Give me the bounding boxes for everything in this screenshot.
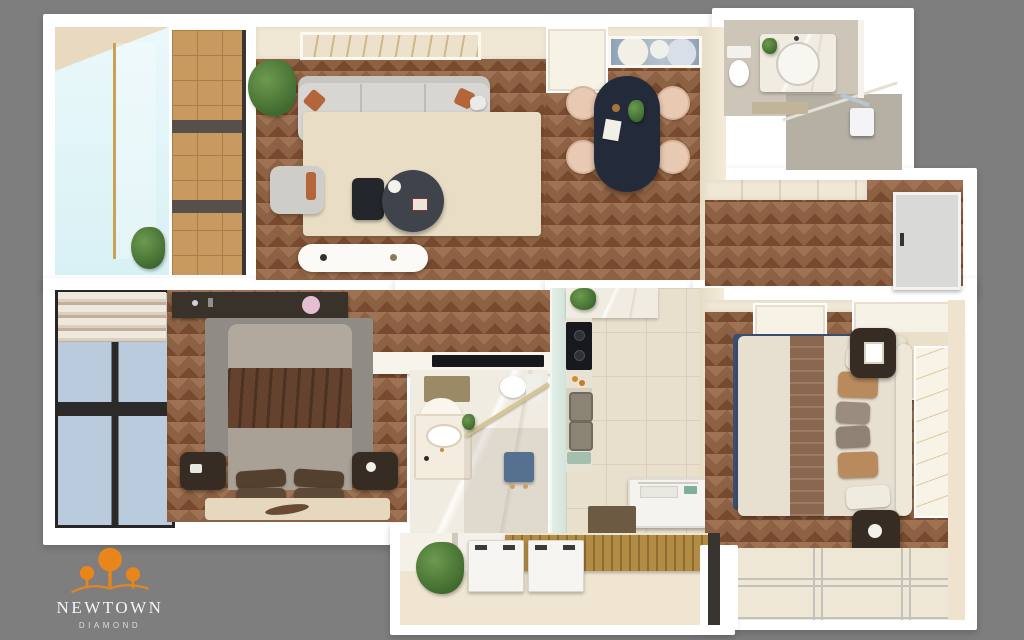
water-heater — [850, 108, 874, 136]
toilet-tank — [727, 46, 751, 58]
washer-control — [563, 545, 575, 550]
television — [432, 355, 544, 367]
stool-leg — [510, 484, 515, 489]
bed-pillow-gray — [835, 401, 870, 425]
window-bench — [298, 244, 428, 272]
cutting-board — [567, 452, 591, 464]
pink-flower-pom — [302, 296, 320, 314]
dining-table-bowl — [612, 104, 620, 112]
bed-headboard — [896, 344, 912, 516]
appliance-lid-line — [638, 482, 698, 484]
kitchen-counter-top — [566, 288, 658, 318]
soap-dish — [424, 456, 429, 461]
washer-control — [503, 545, 515, 550]
stool-leg — [523, 484, 528, 489]
appliance-tray — [640, 486, 678, 498]
kitchen-sink-counter — [566, 388, 592, 450]
kitchen-plant — [570, 288, 596, 310]
photo-frame — [864, 342, 884, 364]
balcony-plant — [131, 227, 165, 269]
bed-blanket-brown — [228, 368, 352, 432]
fruit-bowl — [572, 376, 578, 382]
vanity-sink — [776, 42, 820, 86]
vase — [388, 180, 401, 193]
brand-logo: NEWTOWN DIAMOND — [40, 546, 180, 638]
sliding-door-track — [172, 200, 246, 213]
bath-mat — [752, 102, 808, 114]
sink-basin — [569, 392, 593, 422]
stove-cooktop — [566, 322, 592, 370]
bed-pillow-tan — [838, 451, 879, 478]
nightstand-flowers — [868, 524, 882, 538]
entry-door — [893, 192, 961, 290]
dining-table-plant — [628, 100, 644, 122]
balcony-sky-view — [55, 27, 169, 275]
dining-table — [594, 76, 660, 192]
perfume-bottle — [192, 300, 198, 306]
sliding-door-track — [172, 120, 246, 133]
washer-control — [475, 545, 487, 550]
stove-burner — [574, 330, 585, 341]
bathroom1-vanity — [760, 34, 836, 92]
bed-pillow — [293, 468, 344, 489]
bench-decor — [320, 254, 327, 261]
appliance-chip — [684, 486, 697, 494]
washer-control — [535, 545, 547, 550]
floorplan-render: NEWTOWN DIAMOND — [0, 0, 1024, 640]
brand-name: NEWTOWN — [57, 598, 164, 618]
nightstand — [180, 452, 226, 490]
bedroom1-bed — [228, 324, 352, 516]
dining-cabinet — [546, 27, 608, 93]
dining-table-papers — [602, 119, 621, 141]
armchair — [270, 166, 324, 214]
dining-wall-art — [608, 36, 702, 68]
side-table — [352, 178, 384, 220]
sink-faucet — [794, 36, 799, 41]
washing-machine — [468, 540, 524, 592]
bed-runner — [790, 336, 824, 516]
dining-chair — [656, 86, 690, 120]
vanity-plant — [762, 38, 777, 54]
bathroom2-plant — [462, 414, 475, 430]
throw-pillow-terracotta — [303, 89, 327, 113]
foot-of-bed-mat — [205, 498, 390, 520]
bed-pillow — [235, 468, 286, 489]
living-room-plant — [248, 60, 296, 116]
nightstand — [850, 328, 896, 378]
coffee-table — [382, 170, 444, 232]
balcony-wood-deck — [172, 30, 246, 275]
shower-area — [464, 428, 548, 540]
three-trees-hill-icon — [69, 546, 151, 596]
bed-pillow-gray — [835, 425, 870, 449]
shower-stool — [504, 452, 534, 482]
bathroom1-partition-wall — [858, 20, 864, 98]
headboard-pattern-panel — [914, 346, 952, 518]
entry-door-handle — [900, 233, 904, 246]
nightstand-flowers — [366, 462, 376, 472]
laundry-window-frame — [708, 533, 720, 625]
laundry-plant — [416, 542, 464, 594]
dining-chair — [656, 140, 690, 174]
living-room-wall-art — [300, 32, 481, 60]
brand-subtitle: DIAMOND — [79, 621, 141, 630]
fruit-bowl — [579, 380, 585, 386]
vanity-sink — [426, 424, 462, 448]
nightstand — [352, 452, 398, 490]
door-frame-edge — [242, 30, 246, 275]
bedroom1-curtain — [58, 292, 166, 342]
kitchen-counter-left — [566, 318, 592, 472]
mat-leaf-decor — [265, 502, 310, 517]
bed-pillow-white — [845, 484, 890, 509]
sink-basin — [569, 421, 593, 451]
bench-decor — [390, 254, 397, 261]
bedroom1-floor-extension — [407, 290, 555, 352]
armchair-throw — [306, 172, 316, 200]
perfume-bottle — [208, 298, 213, 307]
washing-machine — [528, 540, 584, 592]
toilet-bowl — [500, 376, 526, 398]
throw-pillow-white — [469, 95, 487, 112]
kitchen-floor-mat — [588, 506, 636, 536]
bedroom2-right-wall — [948, 300, 965, 620]
stove-burner — [574, 350, 585, 361]
toilet-bowl — [729, 60, 749, 86]
bedroom1-vanity-console — [172, 292, 348, 318]
kitchen-appliance-chest — [628, 478, 708, 528]
bedroom2-bottom-wardrobe — [735, 548, 965, 620]
hallway-closet-band — [705, 180, 867, 200]
coffee-table-book — [412, 198, 428, 211]
gold-faucet — [440, 448, 444, 452]
nightstand-decor — [190, 464, 202, 473]
